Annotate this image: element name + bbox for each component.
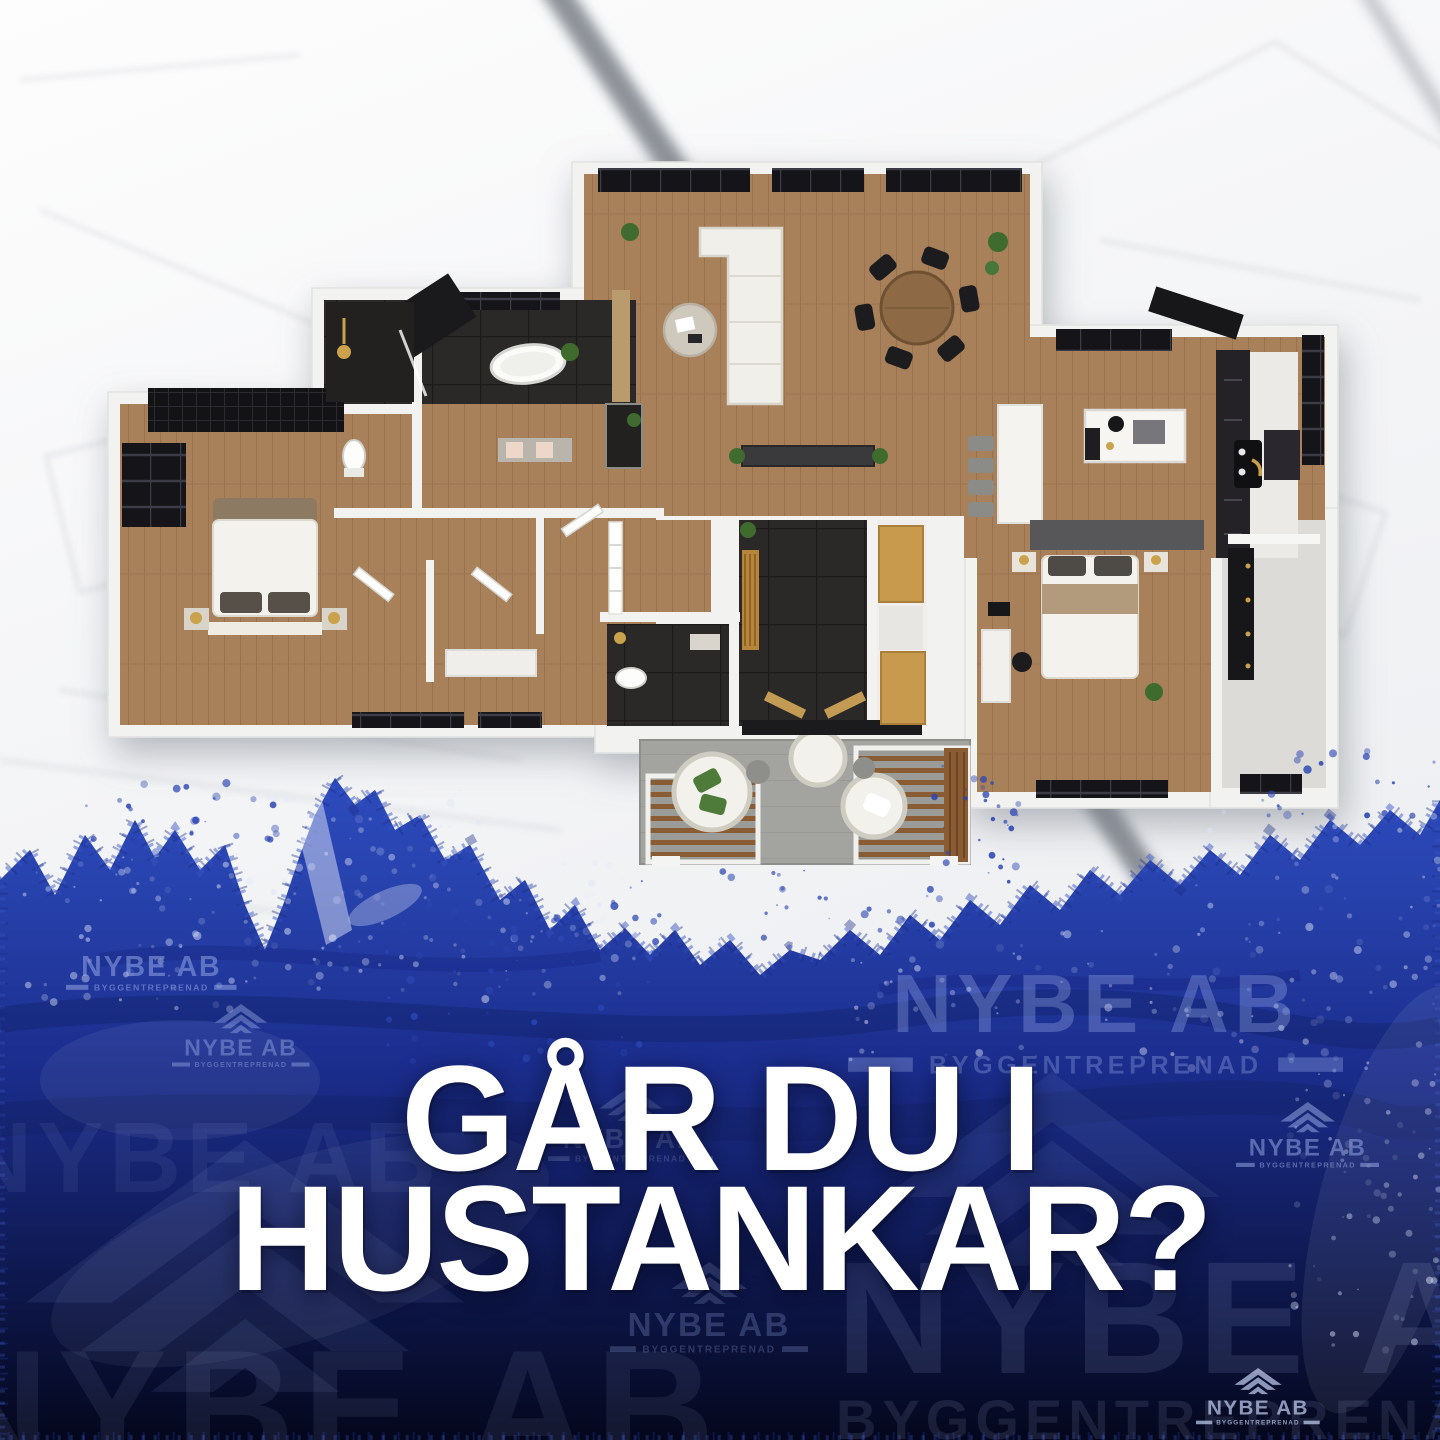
watermark-lockup: NYBE AB BYGGENTREPRENAD	[1196, 1368, 1320, 1426]
dash-bar	[66, 985, 88, 990]
roof-chevrons-icon	[1231, 1368, 1285, 1395]
watermark-company: NYBE AB	[81, 952, 221, 981]
poster-canvas: NYBE AB BYGGENTREPRENAD NYBE AB BYGGENTR…	[0, 0, 1440, 1440]
watermark-ghost-tagline: BYGGENTREPRENAD	[836, 1392, 1440, 1440]
watermark-ghost-company: NYBE AB	[0, 1326, 722, 1440]
headline-line2: HUSTANKAR?	[14, 1178, 1425, 1298]
roof-chevrons-icon	[211, 1004, 271, 1034]
dash-bar	[214, 985, 236, 990]
watermark-tagline: BYGGENTREPRENAD	[94, 983, 209, 992]
headline: GÅR DU I HUSTANKAR?	[0, 1058, 1440, 1298]
watermark-lockup: NYBE AB BYGGENTREPRENAD	[66, 952, 237, 992]
